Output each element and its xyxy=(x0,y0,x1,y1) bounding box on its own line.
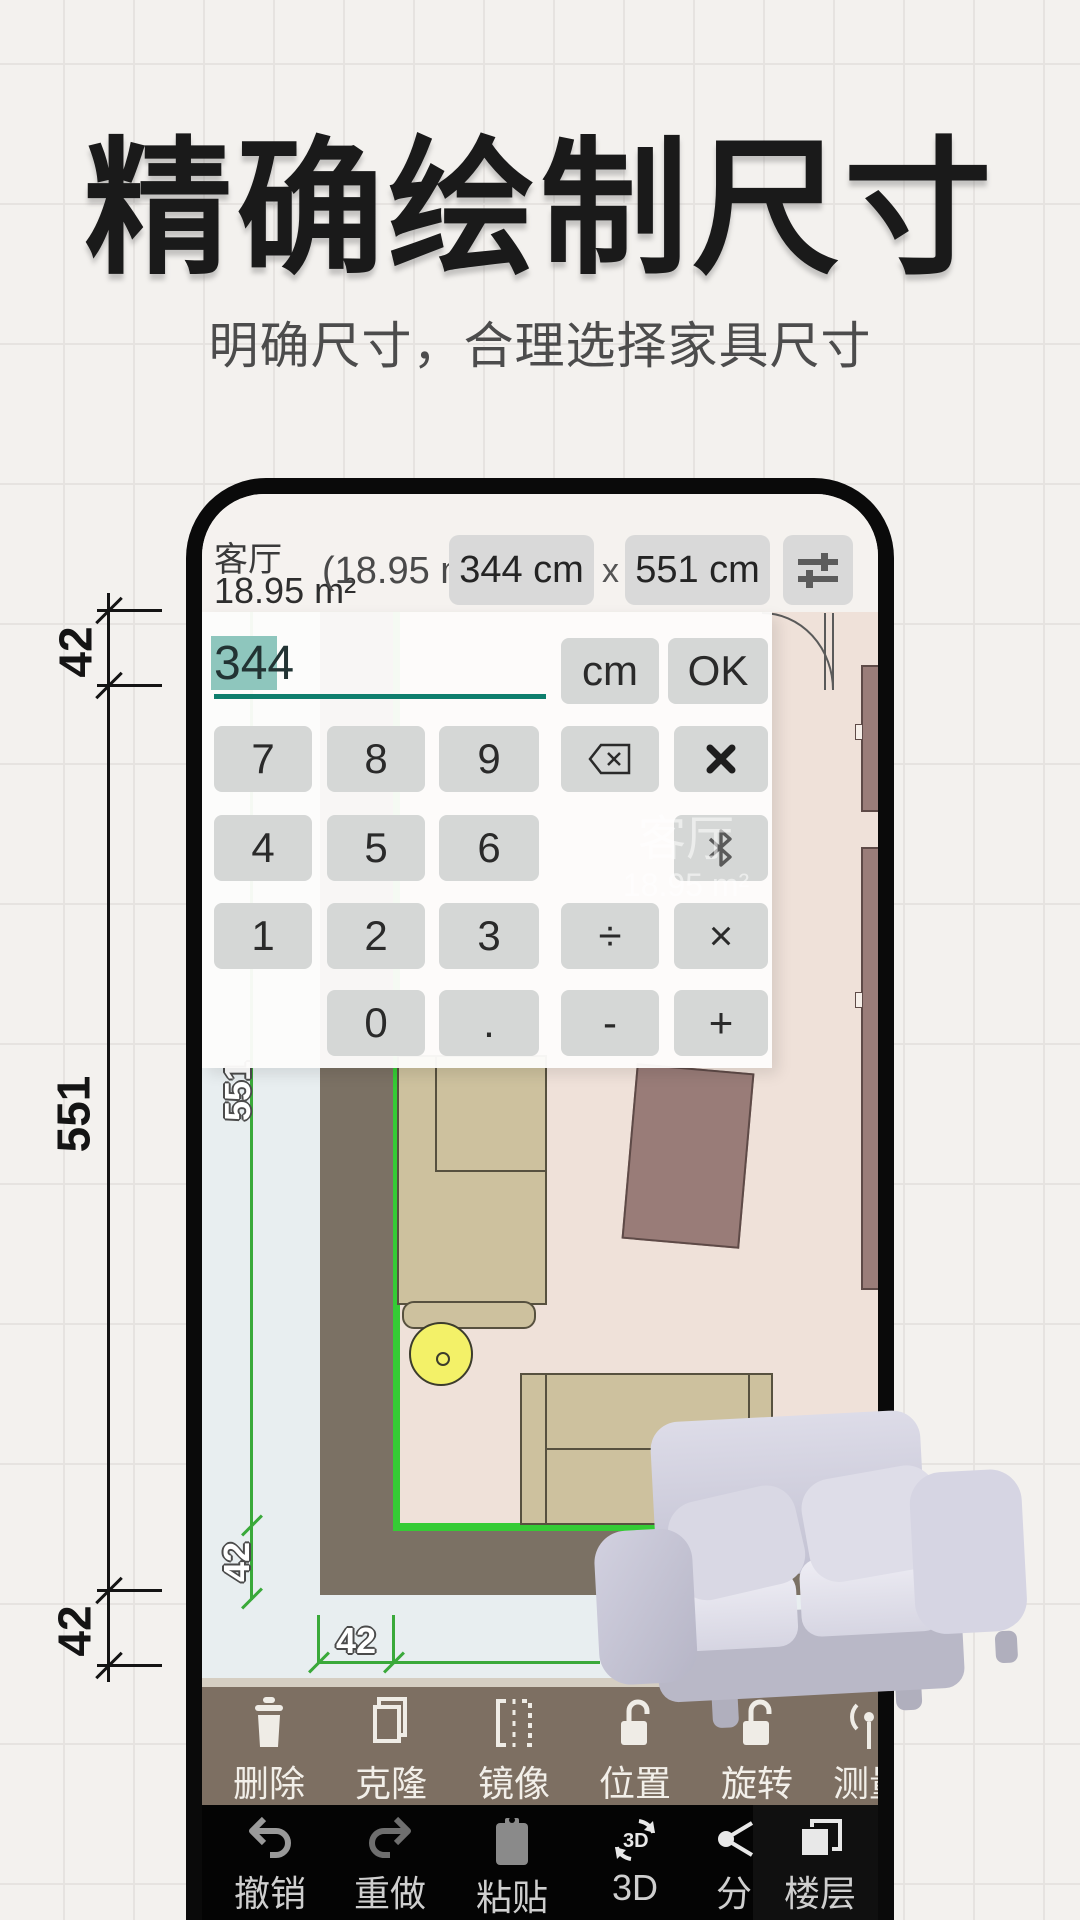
svg-text:3D: 3D xyxy=(623,1830,649,1852)
floorplan-sofa[interactable] xyxy=(397,1055,547,1305)
room-length-button[interactable]: 551 cm xyxy=(625,535,770,605)
rotate-3d-icon: 3D xyxy=(609,1815,661,1865)
key-2[interactable]: 2 xyxy=(327,903,425,969)
unit-button[interactable]: cm xyxy=(561,638,659,704)
mirror-flip-icon xyxy=(488,1695,540,1751)
share-icon xyxy=(712,1815,756,1863)
promo-page: 精确绘制尺寸 明确尺寸，合理选择家具尺寸 42 551 42 xyxy=(0,0,1080,1920)
key-1[interactable]: 1 xyxy=(214,903,312,969)
plan-dimension-witness xyxy=(317,1615,320,1664)
nav-paste[interactable]: 粘贴 xyxy=(457,1815,567,1920)
plan-wall-length-label: 551 xyxy=(217,1065,259,1121)
floorplan-sofa-armrest[interactable] xyxy=(402,1301,536,1329)
trash-icon xyxy=(243,1695,295,1751)
key-minus[interactable]: - xyxy=(561,990,659,1056)
bottom-navbar: 撤销 重做 粘贴 xyxy=(202,1805,878,1920)
plan-offset-label: 42 xyxy=(330,1620,382,1662)
room-width-button[interactable]: 344 cm xyxy=(449,535,594,605)
nav-undo[interactable]: 撤销 xyxy=(215,1815,325,1917)
backspace-icon xyxy=(588,743,632,775)
key-5[interactable]: 5 xyxy=(327,815,425,881)
key-close[interactable] xyxy=(674,726,768,792)
floorplan-rug[interactable] xyxy=(622,1063,755,1249)
dimension-label-top: 42 xyxy=(49,626,103,677)
dimension-label-bottom: 42 xyxy=(48,1605,102,1656)
tune-sliders-icon xyxy=(794,546,842,594)
nav-3d[interactable]: 3D 3D xyxy=(580,1815,690,1909)
undo-icon xyxy=(244,1815,296,1863)
room-label-watermark: 客厅 18.95 m² xyxy=(606,812,766,904)
toolbar-clone[interactable]: 克隆 xyxy=(331,1695,451,1807)
key-8[interactable]: 8 xyxy=(327,726,425,792)
key-plus[interactable]: + xyxy=(674,990,768,1056)
cabinet-handle xyxy=(855,992,863,1008)
toolbar-delete[interactable]: 删除 xyxy=(209,1695,329,1807)
key-decimal[interactable]: . xyxy=(439,990,539,1056)
ok-button[interactable]: OK xyxy=(668,638,768,704)
dimension-label-middle: 551 xyxy=(46,1076,100,1153)
lamp-bulb xyxy=(436,1352,450,1366)
dimension-input[interactable]: 344 xyxy=(214,636,294,691)
dimension-line xyxy=(107,593,110,1682)
toolbar-mirror[interactable]: 镜像 xyxy=(454,1695,574,1807)
floorplan-lamp[interactable] xyxy=(409,1322,473,1386)
page-title: 精确绘制尺寸 xyxy=(0,88,1080,303)
key-7[interactable]: 7 xyxy=(214,726,312,792)
key-0[interactable]: 0 xyxy=(327,990,425,1056)
plan-dimension-witness xyxy=(392,1615,395,1664)
nav-redo[interactable]: 重做 xyxy=(335,1815,445,1917)
redo-icon xyxy=(364,1815,416,1863)
x-close-icon xyxy=(706,744,736,774)
key-divide[interactable]: ÷ xyxy=(561,903,659,969)
floorplan-wall-cabinet[interactable] xyxy=(861,847,878,1290)
page-subtitle: 明确尺寸，合理选择家具尺寸 xyxy=(0,306,1080,378)
app-top-bar: 客厅 18.95 m² (18.95 m²) 344 cm x 551 cm xyxy=(202,494,878,612)
dimension-separator: x xyxy=(602,552,619,591)
key-3[interactable]: 3 xyxy=(439,903,539,969)
sofa-cushion-divider xyxy=(435,1057,437,1172)
layers-icon xyxy=(794,1815,846,1863)
settings-button[interactable] xyxy=(783,535,853,605)
cabinet-handle xyxy=(855,724,863,740)
key-multiply[interactable]: × xyxy=(674,903,768,969)
floorplan-wall-cabinet[interactable] xyxy=(861,665,878,812)
paste-clipboard-icon xyxy=(488,1815,536,1867)
input-underline xyxy=(214,694,546,699)
sofa-cushion-divider xyxy=(435,1170,545,1172)
key-backspace[interactable] xyxy=(561,726,659,792)
key-4[interactable]: 4 xyxy=(214,815,312,881)
sofa-3d-image xyxy=(593,1403,1029,1733)
key-6[interactable]: 6 xyxy=(439,815,539,881)
clone-icon xyxy=(365,1695,417,1751)
key-9[interactable]: 9 xyxy=(439,726,539,792)
plan-thickness-label: 42 xyxy=(216,1536,258,1582)
nav-floors[interactable]: 楼层 xyxy=(765,1815,875,1917)
